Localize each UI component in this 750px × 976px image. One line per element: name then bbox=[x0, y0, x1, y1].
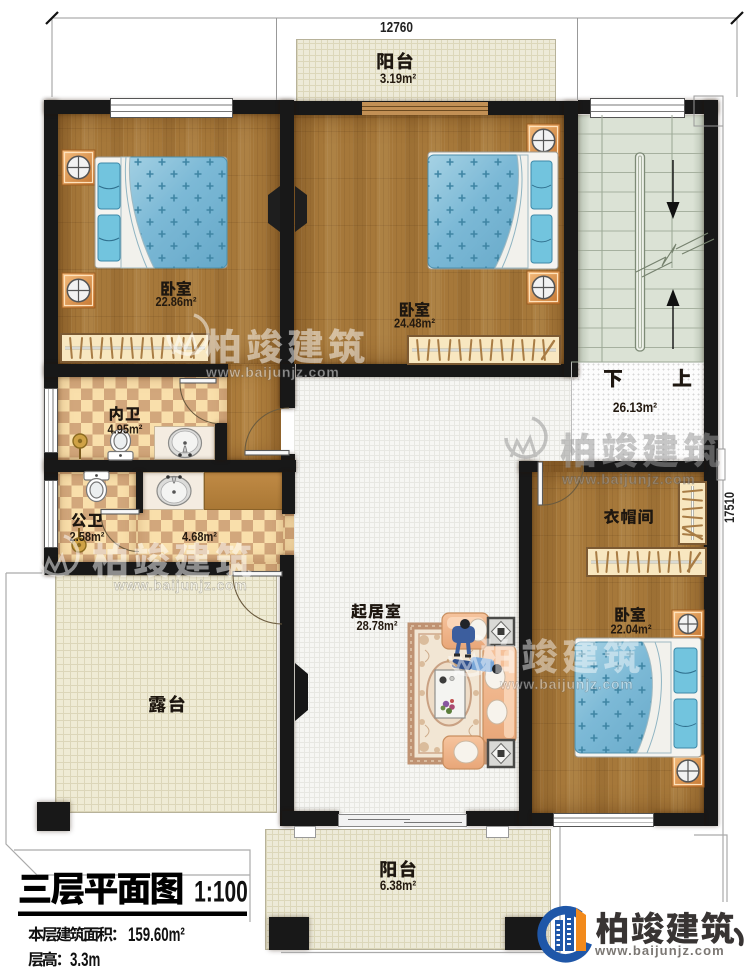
svg-text:www.baijunjz.com: www.baijunjz.com bbox=[499, 676, 634, 692]
svg-text:22.86m²: 22.86m² bbox=[155, 294, 196, 309]
svg-text:www.baijunjz.com: www.baijunjz.com bbox=[594, 943, 725, 958]
svg-text:24.48m²: 24.48m² bbox=[394, 316, 435, 331]
svg-text:26.13m²: 26.13m² bbox=[613, 399, 658, 415]
svg-text:12760: 12760 bbox=[380, 19, 413, 36]
svg-text:4.95m²: 4.95m² bbox=[108, 422, 143, 437]
svg-text:3.3m: 3.3m bbox=[70, 950, 100, 971]
svg-text:17510: 17510 bbox=[722, 492, 737, 523]
svg-text:3.19m²: 3.19m² bbox=[380, 71, 416, 86]
svg-text:www.baijunjz.com: www.baijunjz.com bbox=[205, 364, 340, 380]
svg-text:1:100: 1:100 bbox=[194, 876, 248, 908]
svg-text:159.60m²: 159.60m² bbox=[128, 925, 185, 946]
svg-text:www.baijunjz.com: www.baijunjz.com bbox=[113, 577, 248, 593]
svg-text:22.04m²: 22.04m² bbox=[610, 622, 651, 637]
svg-text:4.68m²: 4.68m² bbox=[182, 529, 217, 544]
svg-text:28.78m²: 28.78m² bbox=[356, 618, 397, 633]
svg-text:6.38m²: 6.38m² bbox=[380, 878, 416, 893]
svg-text:www.baijunjz.com: www.baijunjz.com bbox=[561, 471, 696, 487]
